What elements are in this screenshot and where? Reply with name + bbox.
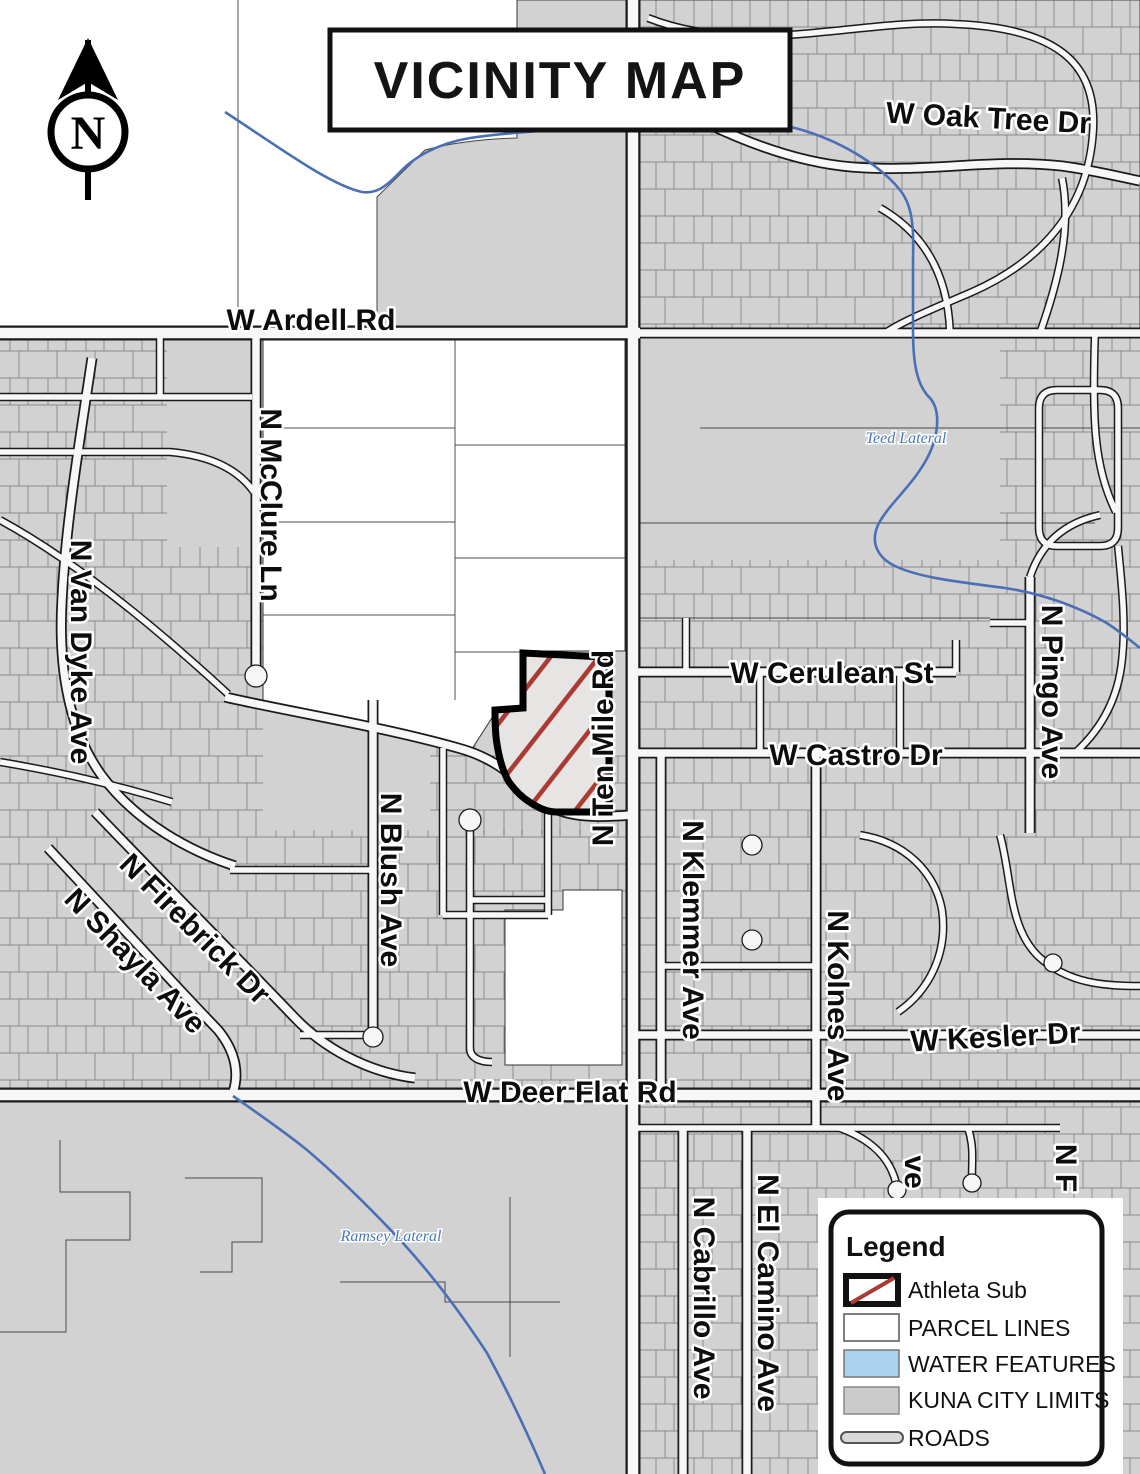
street-label-cabrillo: N Cabrillo Ave (687, 1197, 720, 1400)
north-letter: N (71, 107, 106, 160)
legend-label: WATER FEATURES (908, 1351, 1116, 1377)
kuna-city-limits-swatch (844, 1387, 899, 1414)
street-label-blush: N Blush Ave (374, 793, 407, 967)
parcel-lines-swatch (844, 1314, 899, 1341)
legend-label: ROADS (908, 1425, 990, 1451)
legend-item-athleta-sub: Athleta Sub (846, 1276, 1027, 1304)
map-canvas: Teed Lateral Ramsey Lateral W Oak Tree D… (0, 0, 1140, 1474)
legend-title: Legend (846, 1231, 946, 1262)
cul-de-sac (363, 1027, 383, 1047)
street-label-van-dyke: N Van Dyke Ave (64, 540, 97, 765)
legend-label: KUNA CITY LIMITS (908, 1387, 1110, 1413)
street-label-mcclure: N McClure Ln (254, 408, 287, 601)
street-label-deer-flat: W Deer Flat Rd (463, 1076, 676, 1109)
legend: Legend Athleta Sub PARCEL LINES WATER FE… (818, 1198, 1123, 1474)
cul-de-sac (742, 835, 762, 855)
street-label-ardell: W Ardell Rd (227, 304, 396, 337)
street-label-partial-nf: N F (1049, 1144, 1082, 1192)
vicinity-map-page: Teed Lateral Ramsey Lateral W Oak Tree D… (0, 0, 1140, 1474)
street-label-cerulean: W Cerulean St (730, 657, 933, 690)
street-label-pingo: N Pingo Ave (1035, 605, 1068, 779)
legend-label: Athleta Sub (908, 1277, 1027, 1303)
street-label-kolnes: N Kolnes Ave (821, 910, 854, 1101)
street-label-partial-ave: ve (898, 1155, 931, 1188)
cul-de-sac (245, 665, 267, 687)
cul-de-sac (1044, 954, 1062, 972)
legend-item-parcel-lines: PARCEL LINES (844, 1314, 1070, 1341)
water-features-swatch (844, 1350, 899, 1377)
street-label-klemmer: N Klemmer Ave (676, 820, 709, 1040)
street-label-castro: W Castro Dr (769, 739, 943, 772)
water-label-teed: Teed Lateral (866, 430, 947, 447)
cul-de-sac (459, 809, 481, 831)
legend-item-kuna-city-limits: KUNA CITY LIMITS (844, 1387, 1110, 1414)
cul-de-sac (742, 930, 762, 950)
roads-swatch (841, 1432, 903, 1443)
legend-item-water-features: WATER FEATURES (844, 1350, 1116, 1377)
legend-label: PARCEL LINES (908, 1315, 1070, 1341)
street-label-ten-mile: N Ten Mile Rd (587, 650, 620, 846)
title-box: VICINITY MAP (330, 30, 790, 130)
water-label-ramsey: Ramsey Lateral (340, 1228, 442, 1245)
cul-de-sac (963, 1174, 981, 1192)
page-title: VICINITY MAP (374, 52, 747, 110)
street-label-el-camino: N El Camino Ave (751, 1174, 784, 1412)
